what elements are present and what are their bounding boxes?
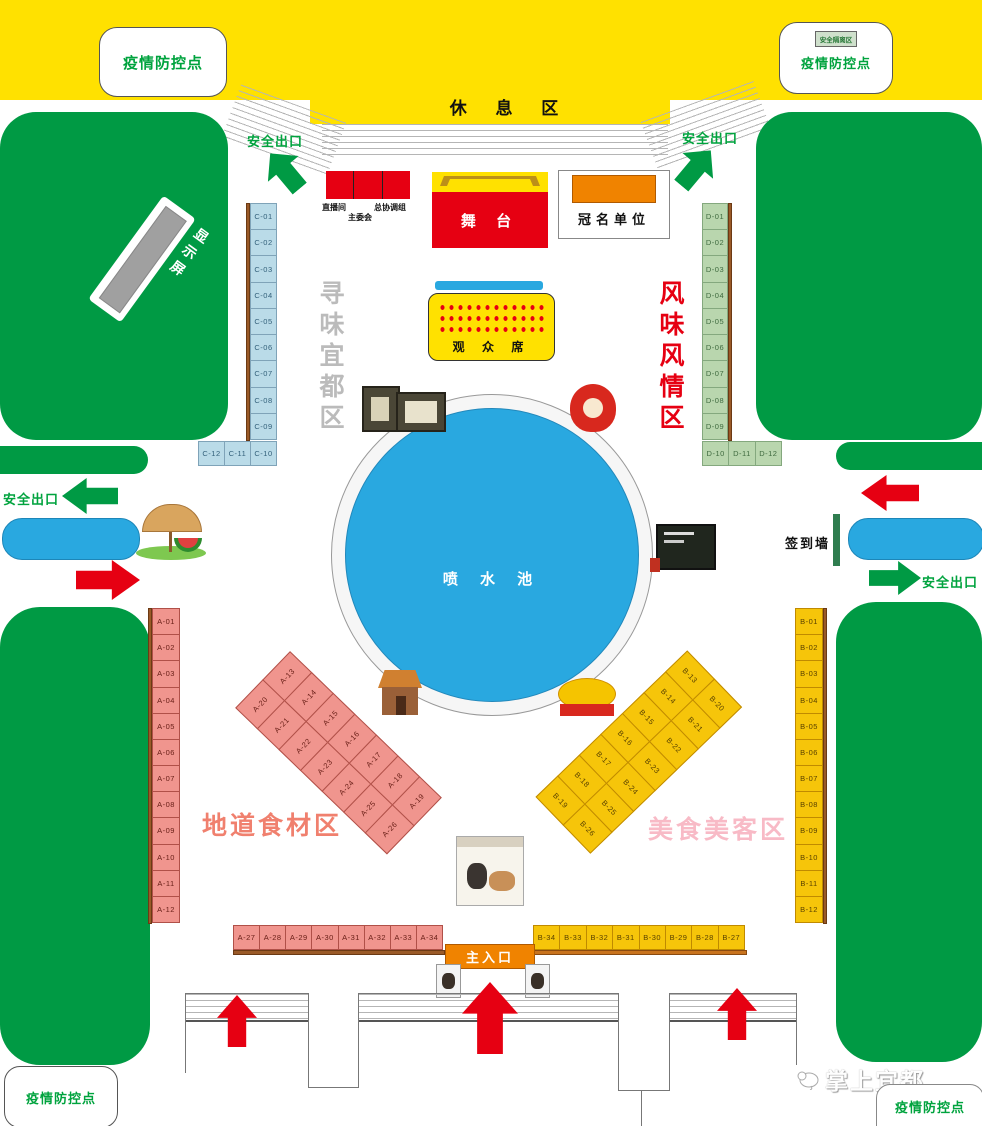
- shop-decor: [378, 670, 422, 716]
- safety-exit-top-left-label: 安全出口: [247, 131, 303, 150]
- stall-B-30: B-30: [639, 925, 666, 950]
- stall-A-06: A-06: [152, 739, 180, 766]
- stall-A-12: A-12: [152, 896, 180, 923]
- stall-D-10: D-10: [702, 441, 729, 466]
- covid-point-bottom-right-label: 疫情防控点: [895, 1097, 965, 1116]
- stall-B-33: B-33: [559, 925, 586, 950]
- stall-wall-a-row: [233, 950, 445, 955]
- entrance-mascot-left-figure: [442, 973, 455, 989]
- stall-D-02: D-02: [702, 229, 728, 256]
- poster-decor-figure-1: [467, 863, 487, 889]
- blackboard-scribble-1: [664, 532, 694, 535]
- zone-fengwei-label: 风味风情区: [652, 280, 688, 435]
- stall-column-a: A-01A-02A-03A-04A-05A-06A-07A-08A-09A-10…: [152, 608, 180, 923]
- bench-left: [2, 518, 140, 560]
- stall-D-01: D-01: [702, 203, 728, 230]
- shop-roof: [378, 670, 422, 688]
- hedge-left: [0, 446, 148, 474]
- stall-B-01: B-01: [795, 608, 823, 635]
- stall-A-03: A-03: [152, 660, 180, 687]
- stall-C-07: C-07: [250, 360, 277, 387]
- umbrella-stand-decor: [136, 500, 206, 562]
- stall-A-11: A-11: [152, 870, 180, 897]
- zone-meishi-label: 美食美客区: [648, 810, 788, 846]
- stall-B-06: B-06: [795, 739, 823, 766]
- live-room-label: 直播间: [322, 202, 346, 213]
- stall-column-d: D-01D-02D-03D-04D-05D-06D-07D-08D-09: [702, 203, 728, 440]
- stall-wall-d: [728, 203, 732, 441]
- stall-row-b: B-34B-33B-32B-31B-30B-29B-28B-27: [533, 925, 745, 950]
- road-line-center: [641, 1090, 642, 1126]
- control-rooms: [326, 171, 410, 199]
- stall-B-34: B-34: [533, 925, 560, 950]
- stall-A-08: A-08: [152, 791, 180, 818]
- stage: 舞 台: [432, 172, 548, 248]
- signin-wall-label: 签到墙: [785, 533, 830, 552]
- entry-arrow-mid-left: [76, 560, 140, 600]
- coordination-box: [383, 171, 410, 199]
- audience-seats-dots: [438, 302, 544, 332]
- road-line-left: [185, 993, 186, 1073]
- stall-A-34: A-34: [416, 925, 443, 950]
- stall-column-b: B-01B-02B-03B-04B-05B-06B-07B-08B-09B-10…: [795, 608, 823, 923]
- sponsor-label: 冠名单位: [559, 209, 669, 228]
- stall-A-31: A-31: [338, 925, 365, 950]
- corridor-right: [618, 993, 670, 1091]
- covid-point-top-left-label: 疫情防控点: [123, 52, 203, 73]
- stall-D-04: D-04: [702, 282, 728, 309]
- committee-label: 主委会: [348, 212, 372, 223]
- main-entrance-label: 主入口: [466, 947, 514, 966]
- stall-A-30: A-30: [311, 925, 338, 950]
- bench-right: [848, 518, 982, 560]
- stairs-top-middle: [322, 124, 668, 158]
- stall-B-11: B-11: [795, 870, 823, 897]
- stall-A-07: A-07: [152, 765, 180, 792]
- stall-A-29: A-29: [285, 925, 312, 950]
- stall-A-28: A-28: [259, 925, 286, 950]
- stage-label: 舞 台: [461, 210, 519, 231]
- entry-arrow-mid-right: [861, 475, 919, 511]
- stall-D-05: D-05: [702, 308, 728, 335]
- stall-A-01: A-01: [152, 608, 180, 635]
- covid-point-top-left: 疫情防控点: [99, 27, 227, 97]
- safety-exit-mid-left-label: 安全出口: [3, 489, 59, 508]
- stall-C-11: C-11: [224, 441, 251, 466]
- stall-C-10: C-10: [250, 441, 277, 466]
- mascot-sign-banner: [560, 704, 614, 716]
- audience-label: 观 众 席: [429, 338, 554, 355]
- plaque-decor-1: [362, 386, 400, 432]
- safety-exit-mid-right-label: 安全出口: [922, 572, 978, 591]
- stall-B-08: B-08: [795, 791, 823, 818]
- covid-point-bottom-right: 疫情防控点: [876, 1084, 982, 1126]
- stall-row-c: C-12C-11C-10: [198, 441, 277, 466]
- blackboard-figure-decor: [650, 558, 660, 572]
- stall-D-12: D-12: [755, 441, 782, 466]
- audience-front-bar: [435, 281, 543, 290]
- stall-B-10: B-10: [795, 844, 823, 871]
- stall-D-08: D-08: [702, 387, 728, 414]
- blackboard-scribble-2: [664, 540, 684, 543]
- stage-floor: 舞 台: [432, 192, 548, 248]
- stall-row-d: D-10D-11D-12: [702, 441, 782, 466]
- entrance-mascot-right-figure: [531, 973, 544, 989]
- stall-C-01: C-01: [250, 203, 277, 230]
- park-bottom-right: [836, 602, 982, 1062]
- corridor-left: [308, 993, 359, 1088]
- stage-canopy: [432, 172, 548, 192]
- stall-A-09: A-09: [152, 817, 180, 844]
- stall-column-c: C-01C-02C-03C-04C-05C-06C-07C-08C-09: [250, 203, 277, 440]
- covid-point-top-right-label: 疫情防控点: [801, 53, 871, 72]
- stall-C-05: C-05: [250, 308, 277, 335]
- stall-D-09: D-09: [702, 413, 728, 440]
- poster-decor-figure-2: [489, 871, 515, 891]
- stall-B-28: B-28: [691, 925, 718, 950]
- hedge-right: [836, 442, 982, 470]
- stall-D-06: D-06: [702, 334, 728, 361]
- stall-B-09: B-09: [795, 817, 823, 844]
- safety-exit-top-right-label: 安全出口: [682, 128, 738, 147]
- stall-C-09: C-09: [250, 413, 277, 440]
- stall-C-06: C-06: [250, 334, 277, 361]
- stall-A-05: A-05: [152, 713, 180, 740]
- shop-door: [396, 696, 406, 715]
- isolation-area-box: 安全隔离区: [815, 31, 858, 47]
- stall-row-a: A-27A-28A-29A-30A-31A-32A-33A-34: [233, 925, 443, 950]
- fountain-pool: [345, 408, 639, 702]
- plaque-decor-2: [396, 392, 446, 432]
- stall-A-33: A-33: [390, 925, 417, 950]
- exit-arrow-mid-right: [869, 561, 921, 595]
- venue-map: 休 息 区 疫情防控点 安全隔离区 疫情防控点 显示屏 安全出口 安全出口 直播…: [0, 0, 982, 1126]
- stall-A-32: A-32: [364, 925, 391, 950]
- stall-B-07: B-07: [795, 765, 823, 792]
- stall-A-27: A-27: [233, 925, 260, 950]
- stall-D-07: D-07: [702, 360, 728, 387]
- stall-B-04: B-04: [795, 687, 823, 714]
- sponsor-box: 冠名单位: [558, 170, 670, 239]
- rest-area-label: 休 息 区: [420, 94, 600, 119]
- stall-A-04: A-04: [152, 687, 180, 714]
- zone-didao-label: 地道食材区: [202, 806, 342, 842]
- stall-A-10: A-10: [152, 844, 180, 871]
- display-screen: 显示屏: [92, 190, 222, 340]
- stall-B-02: B-02: [795, 634, 823, 661]
- stall-C-02: C-02: [250, 229, 277, 256]
- fountain-label: 喷 水 池: [412, 568, 572, 589]
- stall-D-03: D-03: [702, 255, 728, 282]
- audience-area: 观 众 席: [428, 293, 555, 361]
- plaque-decor-2-inner: [405, 401, 437, 423]
- umbrella-canopy: [142, 504, 202, 532]
- mascot-poster-decor-inner: [583, 398, 603, 418]
- signin-wall: [833, 514, 840, 566]
- stall-B-27: B-27: [718, 925, 745, 950]
- stall-B-12: B-12: [795, 896, 823, 923]
- stall-D-11: D-11: [728, 441, 755, 466]
- exit-arrow-mid-left: [62, 478, 118, 514]
- stall-A-02: A-02: [152, 634, 180, 661]
- stall-wall-b: [823, 608, 827, 924]
- plaque-decor-1-inner: [371, 397, 389, 421]
- stall-C-12: C-12: [198, 441, 225, 466]
- stall-B-29: B-29: [665, 925, 692, 950]
- blackboard-decor: [656, 524, 716, 570]
- coordination-label: 总协调组: [374, 202, 406, 213]
- poster-decor: [456, 836, 524, 906]
- road-line-right: [796, 993, 797, 1065]
- stall-B-31: B-31: [612, 925, 639, 950]
- stall-wall-b-row: [527, 950, 747, 955]
- zone-xunwei-label: 寻味宜都区: [312, 280, 348, 435]
- stall-B-03: B-03: [795, 660, 823, 687]
- poster-decor-header: [457, 837, 523, 847]
- committee-box: [354, 171, 382, 199]
- covid-point-top-right: 安全隔离区 疫情防控点: [779, 22, 893, 94]
- park-bottom-left: [0, 607, 150, 1065]
- park-top-right: [756, 112, 982, 440]
- stall-B-05: B-05: [795, 713, 823, 740]
- stall-B-32: B-32: [586, 925, 613, 950]
- stage-truss: [440, 176, 540, 186]
- sponsor-banner: [572, 175, 656, 203]
- stall-C-03: C-03: [250, 255, 277, 282]
- covid-point-bottom-left: 疫情防控点: [4, 1066, 118, 1126]
- covid-point-bottom-left-label: 疫情防控点: [26, 1088, 96, 1107]
- live-room-box: [326, 171, 354, 199]
- bird-icon: [795, 1068, 821, 1090]
- stall-C-04: C-04: [250, 282, 277, 309]
- stall-C-08: C-08: [250, 387, 277, 414]
- mascot-poster-decor: [570, 384, 616, 432]
- mascot-sign-decor: [558, 678, 616, 718]
